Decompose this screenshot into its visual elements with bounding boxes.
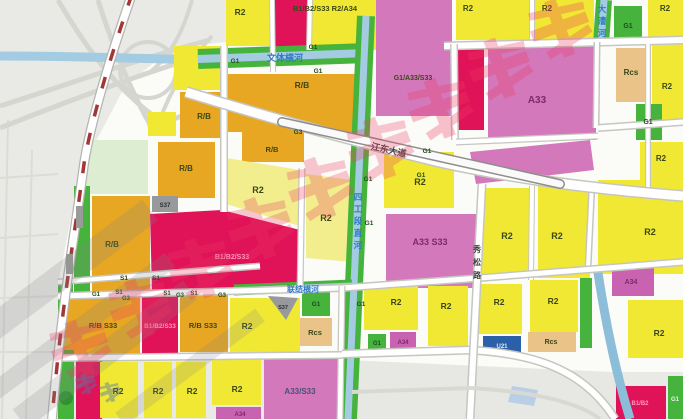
- label-Rcs: Rcs: [545, 339, 558, 346]
- parcel-R2: [364, 286, 418, 330]
- label-R2: R2: [551, 231, 563, 241]
- label-R2: R2: [232, 384, 243, 394]
- label-A33S33: A33 S33: [412, 237, 447, 247]
- label-R2: R2: [391, 297, 402, 307]
- label-R2: R2: [235, 7, 246, 17]
- label-G1: G1: [231, 58, 240, 65]
- parcel-R2: [530, 280, 578, 332]
- zoning-map-screenshot: R2B1/B2/S33 R2/A34R2R2G1R2G1G1G1R/BR/BG3…: [0, 0, 683, 419]
- label-U21: U21: [496, 344, 508, 350]
- label-A34: A34: [625, 279, 638, 286]
- label-G1: G1: [309, 44, 318, 51]
- label-R2: R2: [441, 301, 452, 311]
- label-RB: R/B: [197, 112, 211, 121]
- label-G1: G1: [312, 301, 321, 308]
- label-R2: R2: [654, 328, 665, 338]
- label-G1: G1: [623, 23, 632, 30]
- label-G1: G1: [417, 172, 426, 179]
- road: [531, 186, 532, 280]
- label-R2: R2: [252, 185, 264, 195]
- greenbelt: [580, 278, 592, 348]
- label-R2: R2: [463, 4, 474, 13]
- railway-sign: [76, 206, 83, 228]
- river-name-dacao: 大漕河: [597, 4, 607, 38]
- label-G1: G1: [643, 119, 652, 126]
- parcel-yellow: [148, 112, 176, 136]
- label-A33S33: A33/S33: [284, 387, 316, 396]
- road: [454, 44, 455, 140]
- label-R2: R2: [662, 82, 673, 91]
- road-name-xiusong: 秀松路: [472, 244, 482, 280]
- label-A34: A34: [397, 340, 409, 346]
- parcel-R2: [476, 284, 522, 334]
- label-A34: A34: [234, 412, 246, 418]
- label-S37: S37: [160, 203, 171, 209]
- label-G1: G1: [373, 341, 382, 347]
- label-G1: G1: [365, 220, 374, 227]
- label-G1: G1: [314, 68, 323, 75]
- label-B1B2S33-R2A34: B1/B2/S33 R2/A34: [293, 4, 358, 13]
- label-Rcs: Rcs: [624, 68, 639, 77]
- label-G1: G1: [357, 301, 366, 308]
- river-topleft: [0, 56, 198, 60]
- label-R2: R2: [187, 386, 198, 396]
- label-G3: G3: [294, 129, 303, 136]
- label-RB: R/B: [266, 145, 280, 154]
- parcel-R2: [226, 0, 272, 46]
- label-R2: R2: [656, 154, 667, 163]
- label-R2: R2: [501, 231, 513, 241]
- label-A33: A33: [528, 95, 547, 106]
- river-name-wenti: 文体横河: [266, 52, 303, 63]
- parcel-R2: [428, 286, 468, 346]
- parcel-R2: [538, 186, 590, 278]
- label-RB: R/B: [179, 164, 193, 173]
- label-R2: R2: [548, 296, 559, 306]
- label-G1: G1: [92, 292, 101, 298]
- road: [596, 42, 597, 128]
- river-name-lianjie: 联结横河: [287, 284, 319, 294]
- parcel-R2: [212, 358, 261, 405]
- label-R2: R2: [494, 297, 505, 307]
- label-G3: G3: [218, 293, 227, 299]
- label-R2: R2: [660, 4, 671, 13]
- label-R2: R2: [644, 227, 656, 237]
- label-G1: G1: [423, 148, 432, 155]
- label-RB: R/B: [295, 80, 310, 90]
- label-G1: G1: [671, 397, 680, 403]
- label-B1B2: B1/B2: [631, 401, 649, 407]
- label-Rcs: Rcs: [308, 328, 322, 337]
- label-S37: S37: [278, 305, 288, 311]
- river-name-sigongduan: 四工段直河: [354, 192, 363, 250]
- map-canvas[interactable]: R2B1/B2/S33 R2/A34R2R2G1R2G1G1G1R/BR/BG3…: [0, 0, 683, 419]
- parcel-mint: [84, 140, 148, 194]
- label-RBS33: R/B S33: [189, 321, 217, 330]
